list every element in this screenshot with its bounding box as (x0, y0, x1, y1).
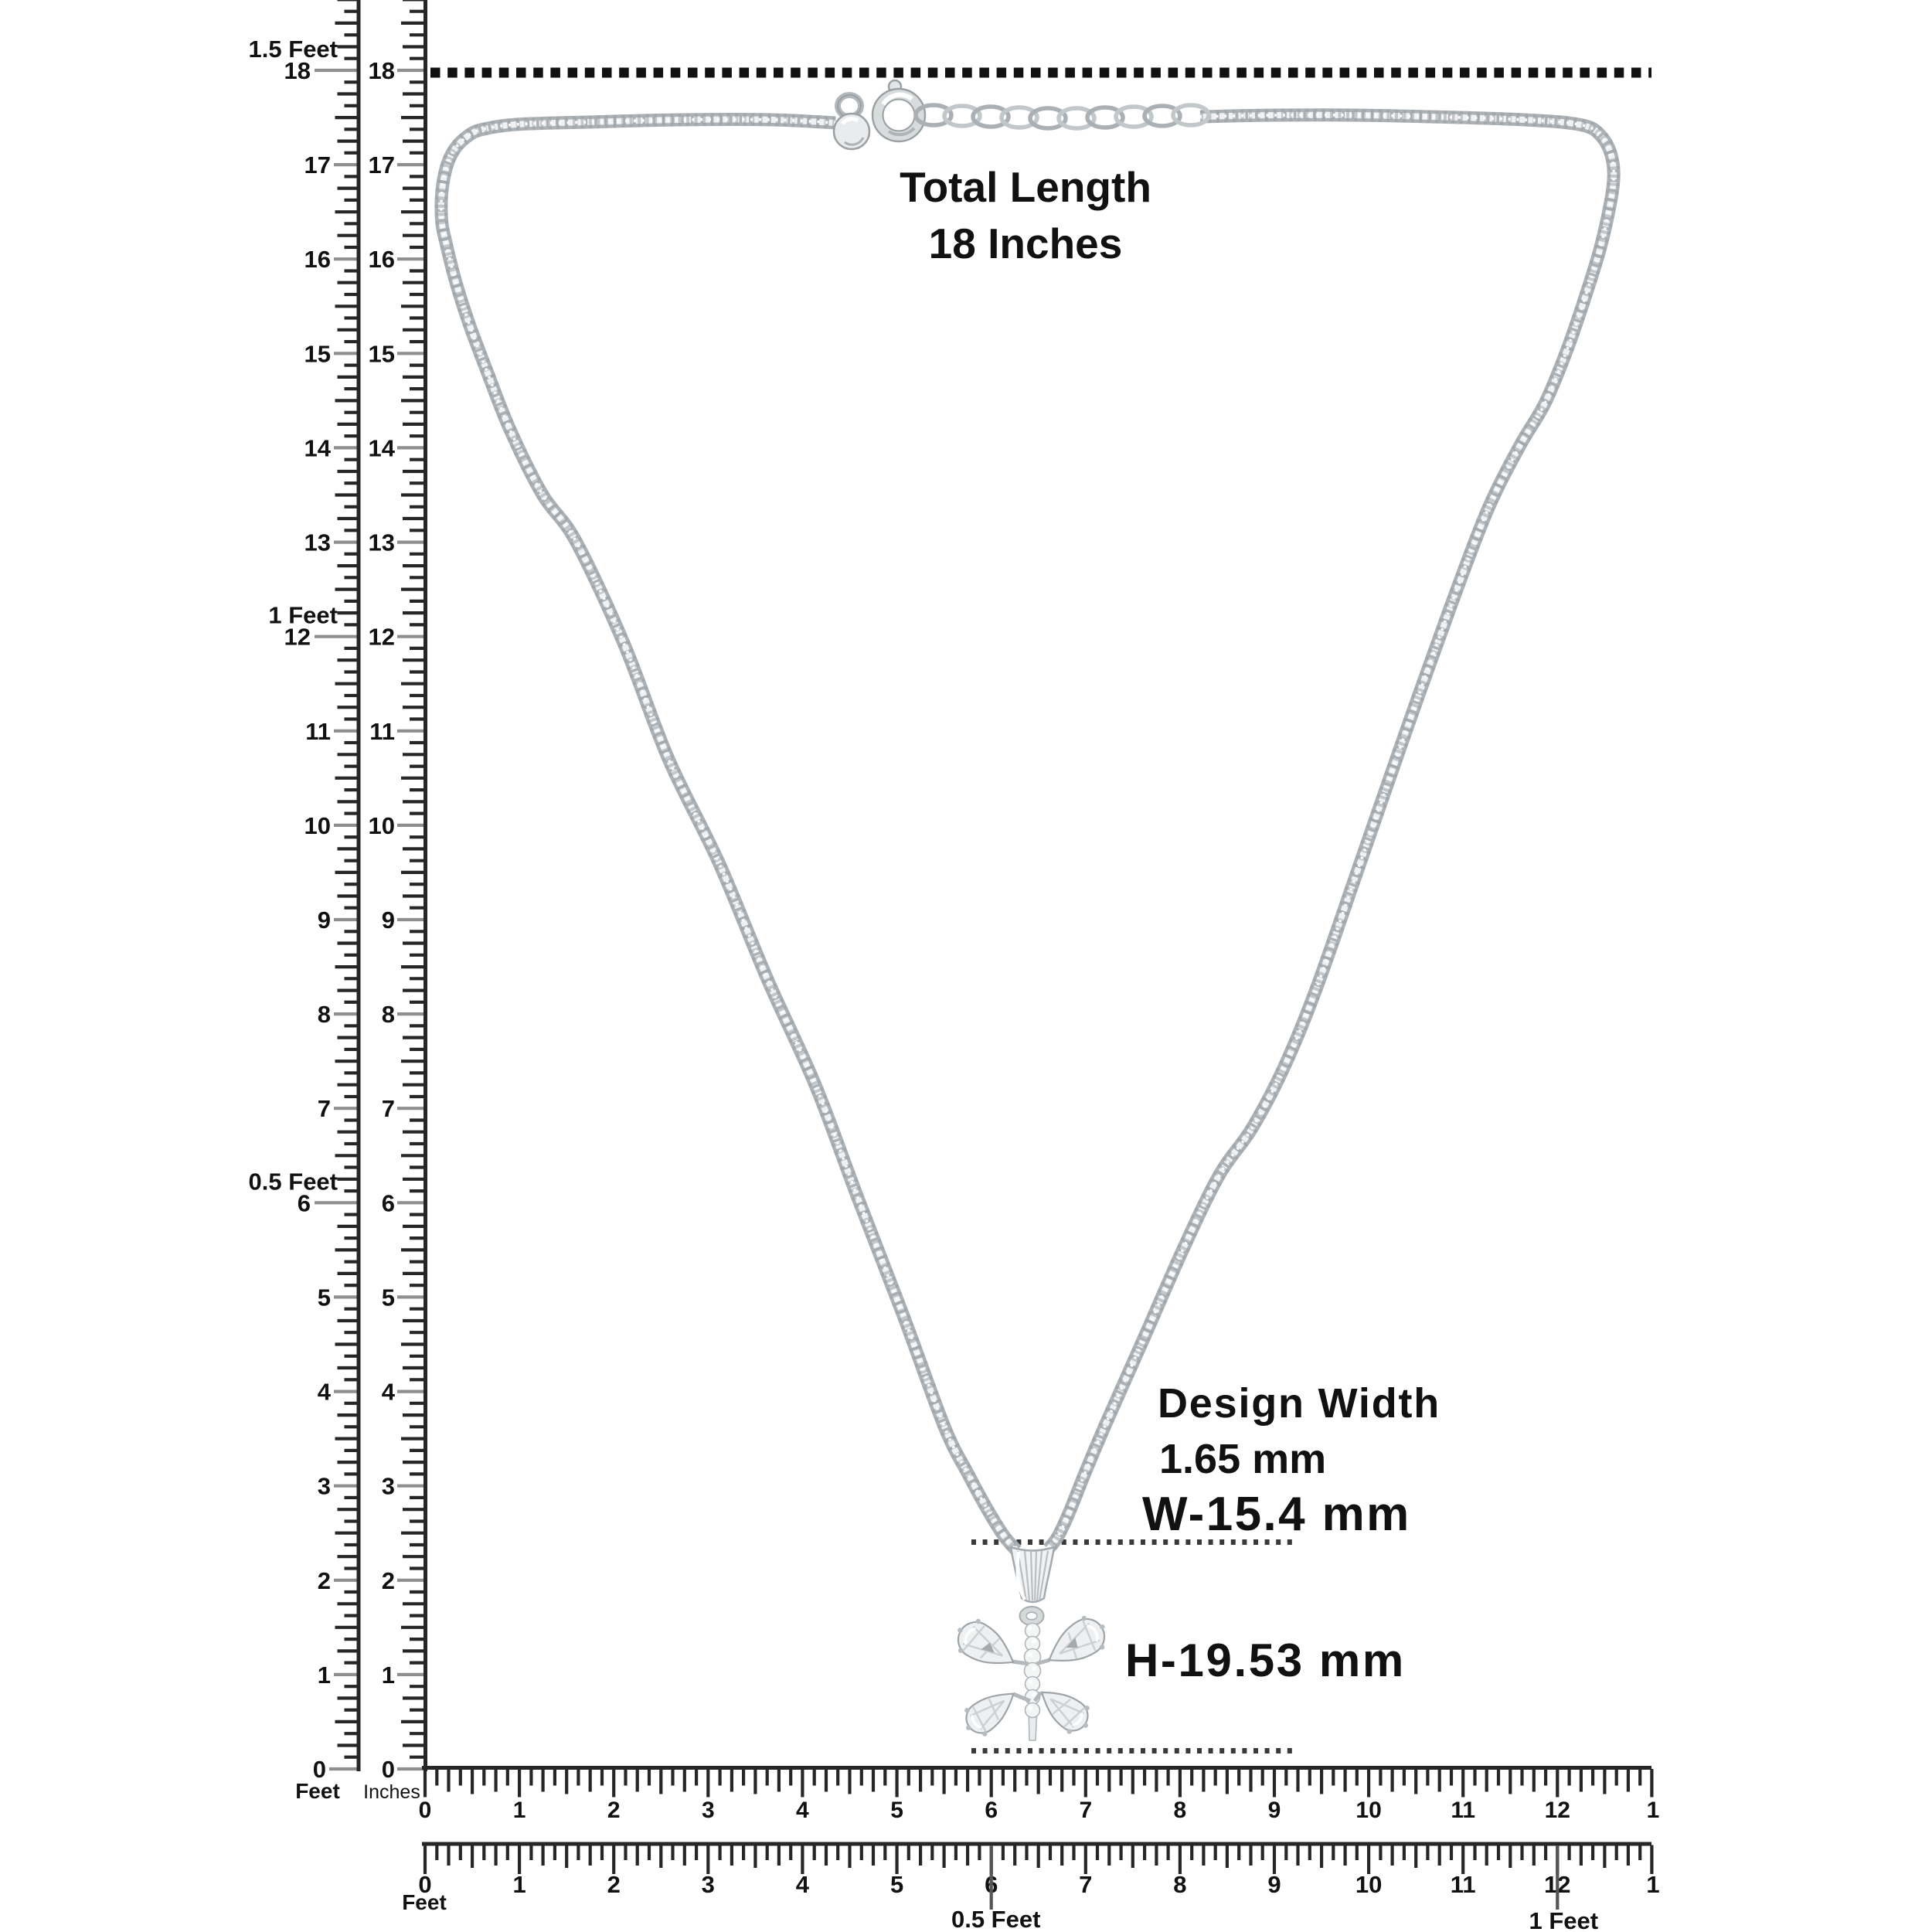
svg-text:0.5 Feet: 0.5 Feet (249, 1168, 338, 1195)
svg-text:1.5 Feet: 1.5 Feet (249, 36, 338, 63)
svg-text:4: 4 (382, 1379, 396, 1406)
svg-text:3: 3 (702, 1798, 715, 1823)
svg-text:2: 2 (607, 1871, 621, 1898)
svg-text:2: 2 (382, 1567, 395, 1594)
svg-text:4: 4 (796, 1871, 810, 1898)
svg-text:4: 4 (796, 1798, 809, 1823)
svg-text:3: 3 (382, 1473, 395, 1500)
svg-text:6: 6 (985, 1798, 998, 1823)
svg-text:7: 7 (1079, 1798, 1092, 1823)
svg-text:6: 6 (382, 1189, 395, 1216)
svg-text:12: 12 (369, 624, 395, 651)
svg-text:1: 1 (1647, 1798, 1660, 1823)
svg-text:15: 15 (304, 340, 331, 367)
svg-text:17: 17 (304, 151, 331, 179)
svg-text:9: 9 (382, 906, 395, 934)
svg-text:9: 9 (1267, 1871, 1281, 1898)
svg-text:16: 16 (304, 246, 331, 273)
svg-text:7: 7 (318, 1095, 331, 1122)
svg-text:16: 16 (369, 246, 395, 273)
svg-text:Inches: Inches (363, 1781, 420, 1803)
svg-text:18 Inches: 18 Inches (929, 219, 1123, 267)
svg-text:15: 15 (369, 340, 395, 367)
svg-text:9: 9 (318, 906, 331, 934)
svg-text:1: 1 (1646, 1871, 1659, 1898)
svg-text:14: 14 (304, 434, 332, 461)
svg-text:0.5 Feet: 0.5 Feet (951, 1906, 1040, 1932)
svg-text:1 Feet: 1 Feet (268, 602, 338, 629)
svg-text:Design Width: Design Width (1158, 1380, 1440, 1427)
svg-text:17: 17 (369, 151, 395, 179)
svg-text:4: 4 (318, 1379, 332, 1406)
svg-text:18: 18 (369, 57, 395, 84)
svg-text:8: 8 (1173, 1871, 1186, 1898)
svg-text:3: 3 (318, 1473, 331, 1500)
svg-text:11: 11 (369, 718, 395, 745)
svg-text:1 Feet: 1 Feet (1529, 1907, 1598, 1932)
svg-text:11: 11 (1451, 1871, 1476, 1898)
svg-text:13: 13 (369, 529, 395, 556)
svg-text:3: 3 (702, 1871, 715, 1898)
svg-text:5: 5 (318, 1284, 331, 1311)
svg-text:9: 9 (1268, 1798, 1281, 1823)
svg-text:Feet: Feet (295, 1779, 340, 1803)
svg-text:14: 14 (369, 434, 396, 461)
svg-text:5: 5 (890, 1871, 903, 1898)
svg-text:5: 5 (890, 1798, 903, 1823)
svg-text:10: 10 (1355, 1871, 1382, 1898)
svg-text:1.65 mm: 1.65 mm (1159, 1436, 1326, 1482)
svg-text:10: 10 (369, 812, 395, 839)
svg-text:8: 8 (1174, 1798, 1187, 1823)
svg-text:5: 5 (382, 1284, 395, 1311)
svg-text:1: 1 (512, 1871, 526, 1898)
svg-text:1: 1 (318, 1662, 331, 1689)
svg-text:11: 11 (1451, 1798, 1475, 1823)
svg-text:13: 13 (304, 529, 331, 556)
svg-text:H-19.53 mm: H-19.53 mm (1125, 1634, 1406, 1686)
svg-text:1: 1 (513, 1798, 526, 1823)
svg-text:8: 8 (382, 1001, 395, 1028)
svg-text:10: 10 (1355, 1798, 1381, 1823)
svg-text:11: 11 (305, 718, 331, 745)
svg-text:12: 12 (1545, 1798, 1570, 1823)
svg-text:8: 8 (318, 1001, 331, 1028)
svg-text:10: 10 (304, 812, 331, 839)
svg-text:Total Length: Total Length (900, 163, 1151, 211)
svg-text:1: 1 (382, 1662, 395, 1689)
svg-text:W-15.4 mm: W-15.4 mm (1142, 1488, 1411, 1541)
svg-text:Feet: Feet (402, 1890, 447, 1914)
svg-text:7: 7 (1079, 1871, 1092, 1898)
svg-text:2: 2 (318, 1567, 331, 1594)
svg-text:0: 0 (419, 1798, 432, 1823)
svg-text:0: 0 (382, 1756, 395, 1783)
svg-text:7: 7 (382, 1095, 395, 1122)
svg-text:2: 2 (607, 1798, 621, 1823)
